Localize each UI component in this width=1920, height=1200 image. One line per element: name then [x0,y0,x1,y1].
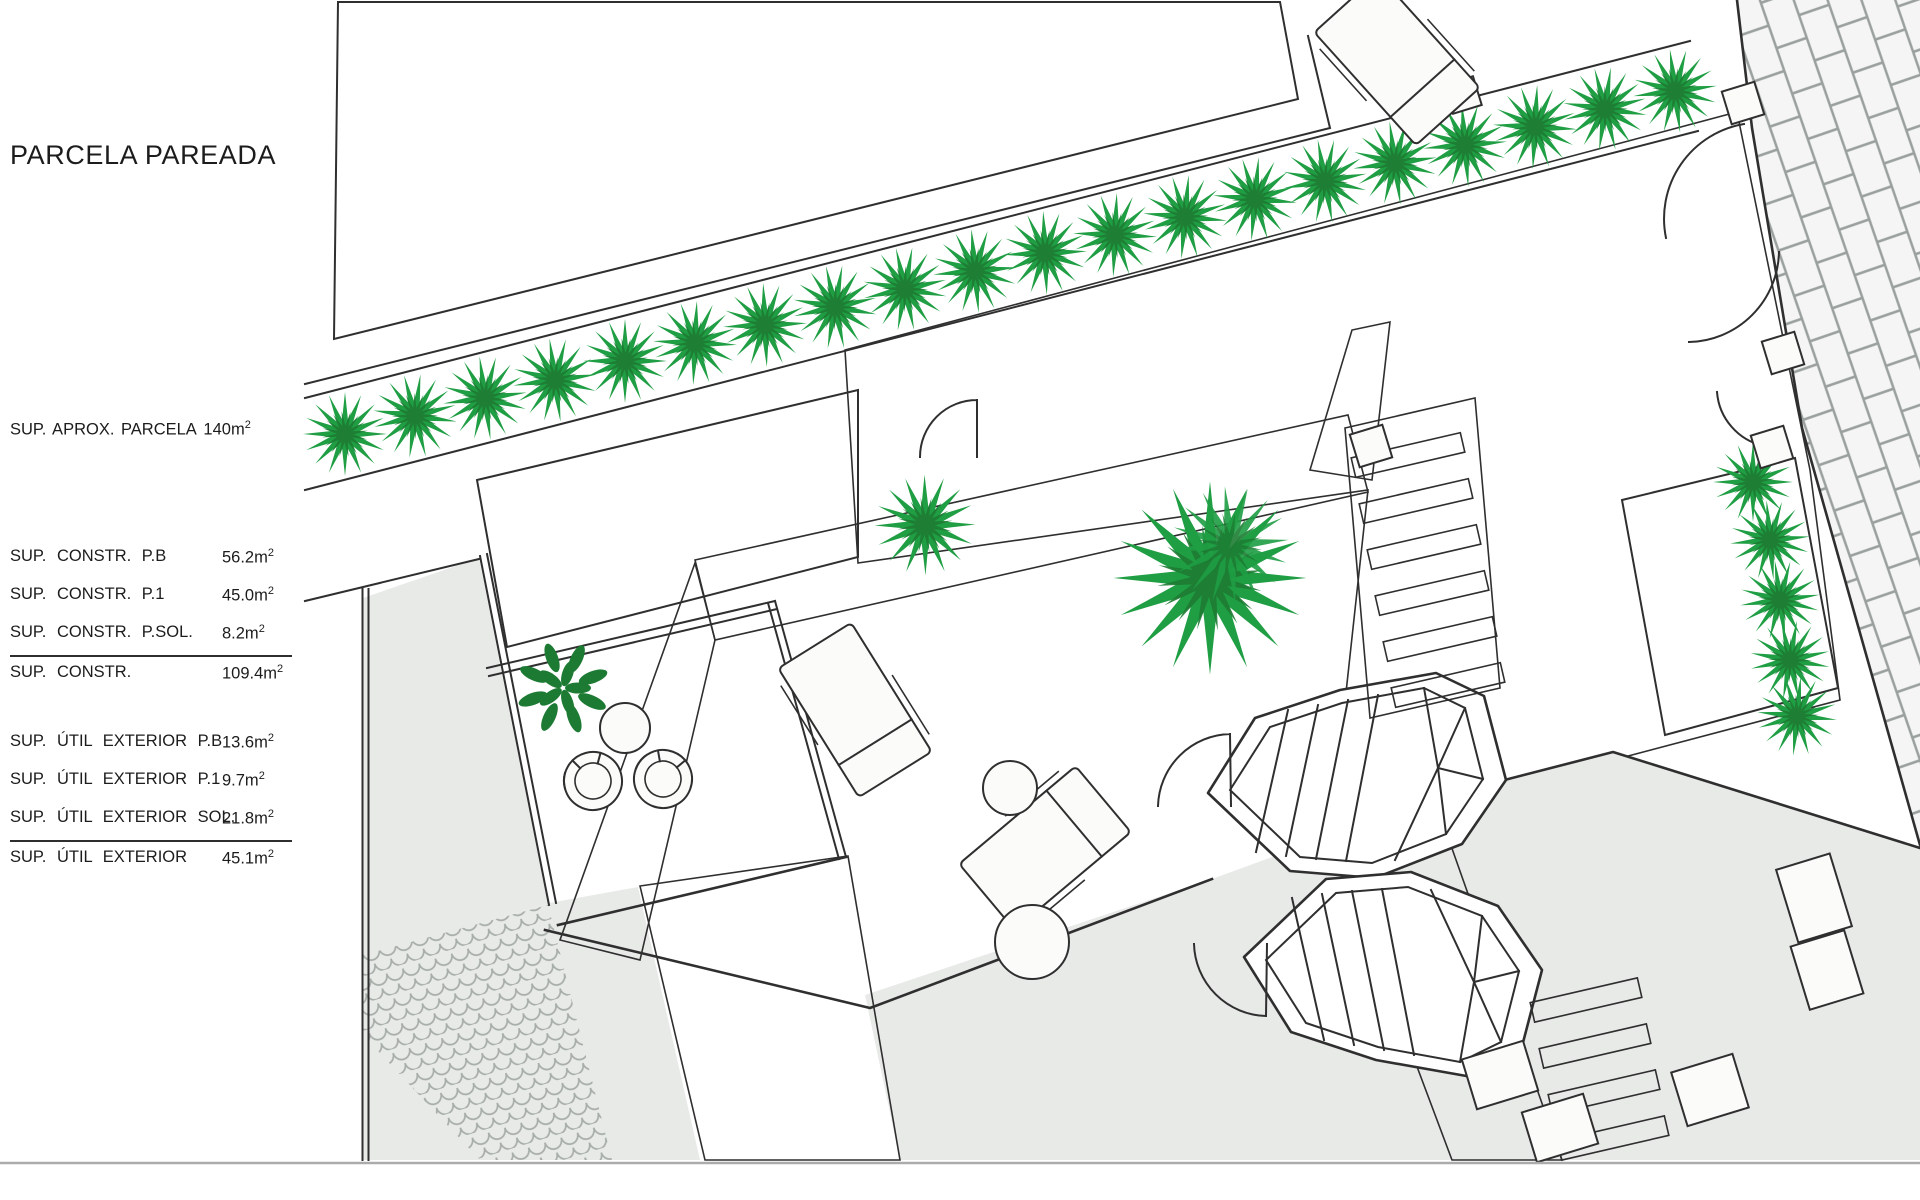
area-row-label: SUP. CONSTR. P.B [10,547,166,566]
area-unit-sup: 2 [268,547,274,559]
path-column [1350,425,1392,467]
area-total-row: SUP. ÚTIL EXTERIOR45.1m2 [10,848,302,878]
area-row-value: 9.7m2 [222,770,265,791]
plot-approx-area: SUP. APROX. PARCELA 140m2 [10,419,251,440]
area-row-label: SUP. ÚTIL EXTERIOR P.1 [10,770,220,789]
palm-tree-small [859,459,990,590]
area-row-label: SUP. ÚTIL EXTERIOR SOL. [10,808,235,827]
area-row-label: SUP. ÚTIL EXTERIOR P.B [10,732,222,751]
area-row-label: SUP. CONSTR. [10,663,131,682]
area-row-value: 109.4m2 [222,663,283,684]
terrace-door [920,400,977,457]
area-unit-sup: 2 [268,808,274,820]
area-row: SUP. CONSTR. P.B56.2m2 [10,547,302,585]
area-row-label: SUP. CONSTR. P.SOL. [10,623,193,642]
stipple-planter-left [477,390,858,647]
area-row: SUP. CONSTR. P.SOL.8.2m2 [10,623,302,661]
palm-tree-large [1113,462,1312,674]
area-row-label: SUP. ÚTIL EXTERIOR [10,848,187,867]
area-row: SUP. ÚTIL EXTERIOR P.B13.6m2 [10,732,302,770]
area-unit-sup: 2 [268,848,274,860]
area-row-label: SUP. CONSTR. P.1 [10,585,164,604]
info-panel: PARCELA PAREADA SUP. APROX. PARCELA 140m… [0,0,305,1200]
round-table [995,905,1069,979]
area-unit-sup: 2 [277,663,283,675]
area-row-value: 45.1m2 [222,848,274,869]
area-unit-sup: 2 [259,770,265,782]
area-unit-sup: 2 [268,732,274,744]
plot-approx-unit: m [231,421,245,439]
gate-column [1751,426,1793,468]
bistro-table [600,703,650,753]
area-row-value: 8.2m2 [222,623,265,644]
side-table [983,761,1037,815]
area-row-value: 21.8m2 [222,808,274,829]
stair-upper [1158,673,1506,878]
area-row: SUP. CONSTR. P.145.0m2 [10,585,302,623]
site-plan-sheet: PARCELA PAREADA SUP. APROX. PARCELA 140m… [0,0,1920,1200]
area-row: SUP. ÚTIL EXTERIOR SOL.21.8m2 [10,808,302,846]
area-unit-sup: 2 [268,585,274,597]
area-unit-sup: 2 [259,623,265,635]
shrub-plant [517,642,609,734]
area-total-row: SUP. CONSTR.109.4m2 [10,663,302,693]
area-row-value: 13.6m2 [222,732,274,753]
area-row: SUP. ÚTIL EXTERIOR P.19.7m2 [10,770,302,808]
page-title: PARCELA PAREADA [10,140,276,171]
area-row-value: 56.2m2 [222,547,274,568]
built-area-table: SUP. CONSTR. P.B56.2m2SUP. CONSTR. P.145… [10,547,302,693]
egg-chair-1 [557,745,628,816]
plot-approx-label: SUP. APROX. PARCELA [10,421,197,439]
hedge-row [303,32,1734,490]
exterior-area-table: SUP. ÚTIL EXTERIOR P.B13.6m2SUP. ÚTIL EX… [10,732,302,878]
plot-approx-unit-sup: 2 [245,419,251,431]
area-row-value: 45.0m2 [222,585,274,606]
plot-approx-value: 140 [203,421,231,439]
